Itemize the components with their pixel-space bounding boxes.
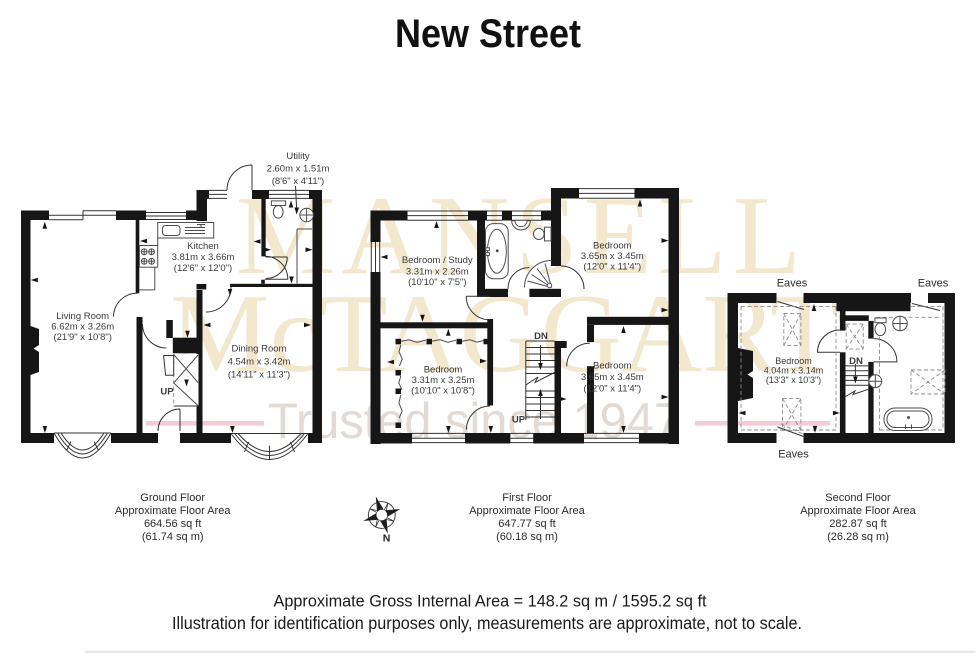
svg-text:New Street: New Street	[395, 12, 581, 56]
svg-text:3.31m x 3.25m: 3.31m x 3.25m	[412, 375, 475, 386]
svg-text:6.62m x 3.26m: 6.62m x 3.26m	[51, 321, 114, 332]
svg-text:Approximate Gross Internal Are: Approximate Gross Internal Area = 148.2 …	[274, 592, 707, 611]
svg-text:(13'3" x 10'3"): (13'3" x 10'3")	[766, 375, 821, 385]
svg-text:(12'0" x 11'4"): (12'0" x 11'4")	[583, 383, 641, 394]
svg-text:N: N	[383, 533, 391, 545]
svg-text:(12'0" x 11'4"): (12'0" x 11'4")	[583, 261, 641, 272]
svg-text:(21'9" x 10'8"): (21'9" x 10'8")	[53, 332, 111, 343]
svg-text:3.65m x 3.45m: 3.65m x 3.45m	[581, 251, 644, 262]
svg-text:Utility: Utility	[286, 151, 309, 162]
svg-text:Ground Floor: Ground Floor	[140, 492, 205, 504]
svg-text:UP: UP	[512, 414, 526, 425]
svg-text:Approximate Floor Area: Approximate Floor Area	[469, 505, 585, 517]
svg-text:Approximate Floor Area: Approximate Floor Area	[800, 505, 916, 517]
svg-text:DN: DN	[849, 356, 863, 367]
svg-text:Living Room: Living Room	[56, 311, 109, 322]
svg-text:664.56 sq ft: 664.56 sq ft	[144, 518, 202, 530]
svg-text:Kitchen: Kitchen	[187, 241, 219, 252]
svg-text:4.04m x 3.14m: 4.04m x 3.14m	[764, 366, 824, 376]
svg-text:Bedroom: Bedroom	[593, 240, 632, 251]
svg-text:(10'10" x 10'8"): (10'10" x 10'8")	[411, 385, 475, 396]
svg-text:282.87 sq ft: 282.87 sq ft	[829, 518, 887, 530]
svg-text:Bedroom: Bedroom	[424, 364, 463, 375]
svg-text:Illustration for identificatio: Illustration for identification purposes…	[172, 614, 802, 633]
svg-text:(26.28 sq m): (26.28 sq m)	[827, 531, 889, 543]
svg-text:(12'6" x 12'0"): (12'6" x 12'0")	[174, 263, 232, 274]
svg-text:Dining Room: Dining Room	[232, 343, 287, 354]
svg-text:2.60m x 1.51m: 2.60m x 1.51m	[267, 164, 330, 175]
svg-text:Approximate Floor Area: Approximate Floor Area	[115, 505, 231, 517]
svg-text:Bedroom: Bedroom	[775, 356, 812, 366]
svg-text:(8'6" x 4'11"): (8'6" x 4'11")	[272, 176, 324, 187]
svg-text:First Floor: First Floor	[502, 492, 552, 504]
svg-text:(61.74 sq m): (61.74 sq m)	[142, 531, 204, 543]
svg-text:UP: UP	[160, 387, 174, 398]
svg-text:Second Floor: Second Floor	[825, 492, 891, 504]
svg-text:(60.18 sq m): (60.18 sq m)	[496, 531, 558, 543]
svg-text:Eaves: Eaves	[918, 278, 949, 290]
svg-text:Bedroom: Bedroom	[593, 360, 632, 371]
svg-text:Eaves: Eaves	[778, 449, 809, 461]
svg-text:3.81m x 3.66m: 3.81m x 3.66m	[172, 252, 235, 263]
svg-text:3.65m x 3.45m: 3.65m x 3.45m	[581, 372, 644, 383]
svg-text:Bedroom / Study: Bedroom / Study	[402, 255, 473, 266]
svg-text:DN: DN	[534, 331, 548, 342]
svg-text:Eaves: Eaves	[777, 278, 808, 290]
svg-text:647.77 sq ft: 647.77 sq ft	[498, 518, 556, 530]
svg-text:4.54m x 3.42m: 4.54m x 3.42m	[228, 356, 291, 367]
svg-text:(10'10" x 7'5"): (10'10" x 7'5")	[408, 277, 466, 288]
svg-text:(14'11" x 11'3"): (14'11" x 11'3")	[228, 369, 290, 380]
